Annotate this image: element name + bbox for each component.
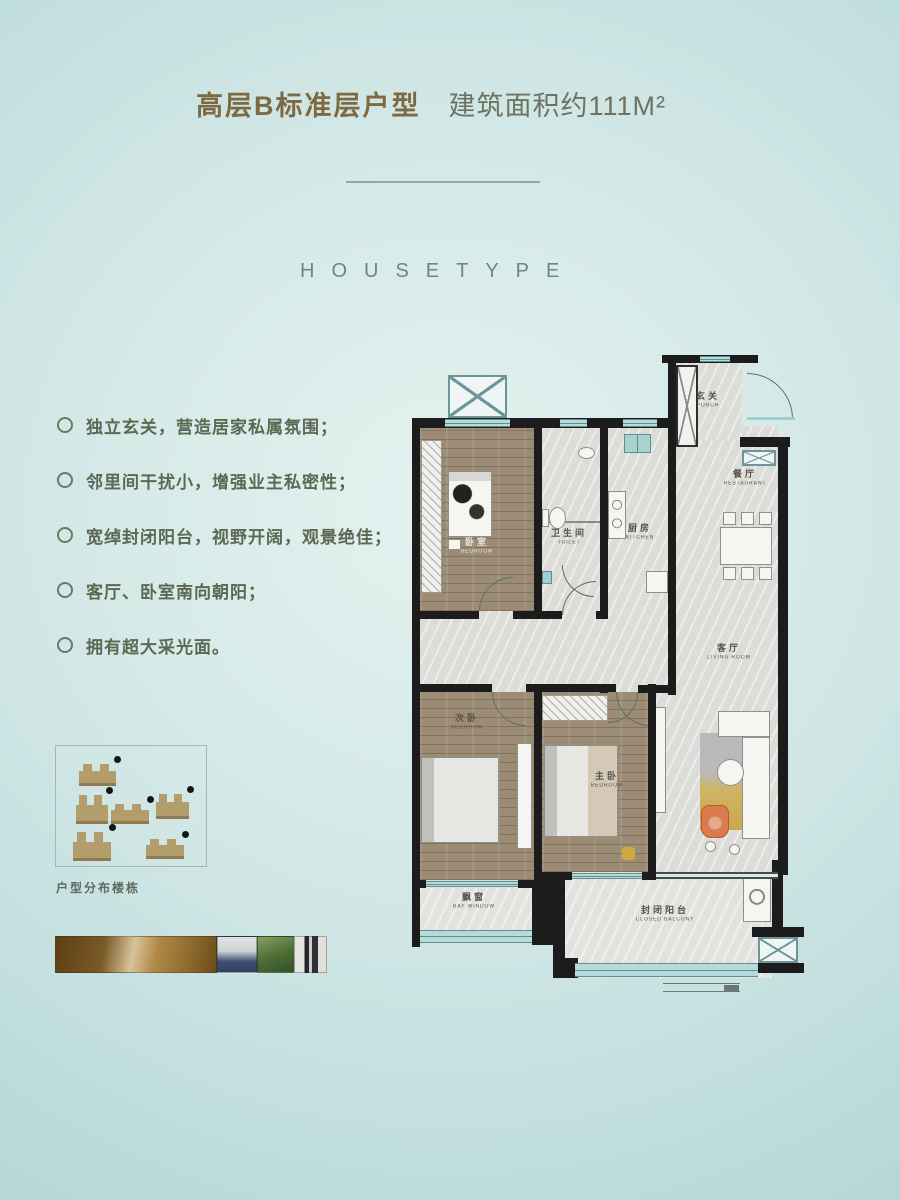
dining-chair-icon xyxy=(759,567,772,580)
window-box-icon xyxy=(742,450,776,466)
floor-plan: 玄关PORCH 餐厅RESTAURANT 卫生间TOILET 厨房KITCHEN… xyxy=(412,345,804,1017)
wall-segment xyxy=(412,684,492,692)
wall-segment xyxy=(648,684,656,876)
poster-canvas: 高层B标准层户型建筑面积约111M² HOUSETYPE 独立玄关，营造居家私属… xyxy=(0,0,900,1200)
washbasin-icon xyxy=(578,447,595,459)
photo-architecture xyxy=(55,936,217,973)
wall-segment xyxy=(513,611,534,619)
wall-segment xyxy=(534,418,542,619)
desk-icon xyxy=(517,743,532,849)
wall-segment xyxy=(412,611,479,619)
window xyxy=(623,419,657,427)
photo-interior xyxy=(217,936,257,973)
window xyxy=(560,419,587,427)
title-divider xyxy=(346,181,540,183)
photo-landscape xyxy=(257,936,294,973)
nightstand-icon xyxy=(448,539,461,550)
window xyxy=(445,419,510,427)
wall-segment xyxy=(752,927,804,937)
feature-list: 独立玄关，营造居家私属氛围； 邻里间干扰小，增强业主私密性； 宽绰封闭阳台，视野… xyxy=(57,415,392,690)
wall-segment xyxy=(532,880,553,945)
wall-segment xyxy=(642,872,656,880)
wall-segment xyxy=(778,445,788,875)
feature-text: 拥有超大采光面。 xyxy=(86,633,230,658)
bullet-circle-icon xyxy=(57,417,73,433)
dining-chair-icon xyxy=(741,567,754,580)
balcony-window-glass xyxy=(575,963,758,977)
wall-segment xyxy=(668,355,676,695)
dining-chair-icon xyxy=(759,512,772,525)
bath-mat-icon xyxy=(542,571,552,584)
building-icon xyxy=(73,831,111,861)
unit-dot-icon xyxy=(182,831,189,838)
wall-segment xyxy=(534,611,562,619)
feature-text: 独立玄关，营造居家私属氛围； xyxy=(86,413,338,438)
sofa-icon xyxy=(742,737,770,839)
wall-segment xyxy=(758,963,804,973)
feature-item: 宽绰封闭阳台，视野开阔，观景绝佳； xyxy=(57,525,392,545)
bay-window-glass xyxy=(420,930,532,943)
wall-segment xyxy=(772,860,783,930)
blanket-icon xyxy=(588,746,617,836)
feature-text: 邻里间干扰小，增强业主私密性； xyxy=(86,468,356,493)
wall-segment xyxy=(638,685,676,693)
coffee-table-icon xyxy=(717,759,744,786)
bullet-circle-icon xyxy=(57,527,73,543)
fridge-icon xyxy=(646,571,668,593)
entrance-door-leaf xyxy=(747,417,795,420)
dining-chair-icon xyxy=(741,512,754,525)
unit-dot-icon xyxy=(114,756,121,763)
feature-text: 客厅、卧室南向朝阳； xyxy=(86,578,266,603)
wall-segment xyxy=(534,684,542,880)
building-icon xyxy=(146,838,184,859)
floor-area-text: 建筑面积约111M² xyxy=(448,91,666,121)
wall-segment xyxy=(412,418,420,947)
balcony-annotation-tag xyxy=(724,985,739,991)
legend-caption: 户型分布楼栋 xyxy=(56,879,140,896)
wall-segment xyxy=(412,880,426,888)
unit-dot-icon xyxy=(109,824,116,831)
wall-segment xyxy=(596,611,608,619)
dining-table-icon xyxy=(720,527,772,565)
unit-dot-icon xyxy=(147,796,154,803)
feature-item: 拥有超大采光面。 xyxy=(57,635,392,655)
bullet-circle-icon xyxy=(57,637,73,653)
wardrobe-icon xyxy=(542,695,608,721)
feature-item: 客厅、卧室南向朝阳； xyxy=(57,580,392,600)
feature-item: 独立玄关，营造居家私属氛围； xyxy=(57,415,392,435)
building-distribution-box xyxy=(55,745,207,867)
bullet-circle-icon xyxy=(57,582,73,598)
pouf-icon xyxy=(705,841,716,852)
tv-stand-icon xyxy=(655,707,666,813)
bed-icon xyxy=(448,471,492,537)
window-box-icon xyxy=(448,375,507,418)
shaft-icon xyxy=(676,365,698,447)
dining-chair-icon xyxy=(723,512,736,525)
bed-icon xyxy=(421,757,499,843)
kitchen-sink-icon xyxy=(624,434,651,453)
window xyxy=(700,356,730,362)
toilet-tank-icon xyxy=(542,509,549,527)
building-icon xyxy=(76,794,108,824)
toilet-bowl-icon xyxy=(549,507,566,529)
building-icon xyxy=(79,763,116,786)
bullet-circle-icon xyxy=(57,472,73,488)
photo-facade xyxy=(294,936,327,973)
stool-icon xyxy=(622,847,635,860)
feature-item: 邻里间干扰小，增强业主私密性； xyxy=(57,470,392,490)
entrance-door-swing-icon xyxy=(747,373,793,419)
bay-window-floor xyxy=(420,888,532,930)
unit-dot-icon xyxy=(187,786,194,793)
building-icon xyxy=(156,793,189,819)
armchair-icon xyxy=(701,805,729,838)
section-heading: HOUSETYPE xyxy=(300,260,576,283)
wall-segment xyxy=(742,355,758,363)
page-title: 高层B标准层户型建筑面积约111M² xyxy=(0,84,862,123)
sofa-icon xyxy=(718,711,770,737)
sliding-door xyxy=(656,872,778,879)
window xyxy=(426,881,518,887)
feature-text: 宽绰封闭阳台，视野开阔，观景绝佳； xyxy=(86,523,392,548)
window-box-icon xyxy=(758,937,798,963)
washing-machine-icon xyxy=(743,876,771,922)
window xyxy=(572,873,642,879)
building-icon xyxy=(111,803,149,824)
dining-chair-icon xyxy=(723,567,736,580)
stove-icon xyxy=(608,491,626,539)
pouf-icon xyxy=(729,844,740,855)
unit-dot-icon xyxy=(106,787,113,794)
house-type-title: 高层B标准层户型 xyxy=(196,91,421,121)
wall-segment xyxy=(600,418,608,619)
wardrobe-icon xyxy=(421,440,442,593)
